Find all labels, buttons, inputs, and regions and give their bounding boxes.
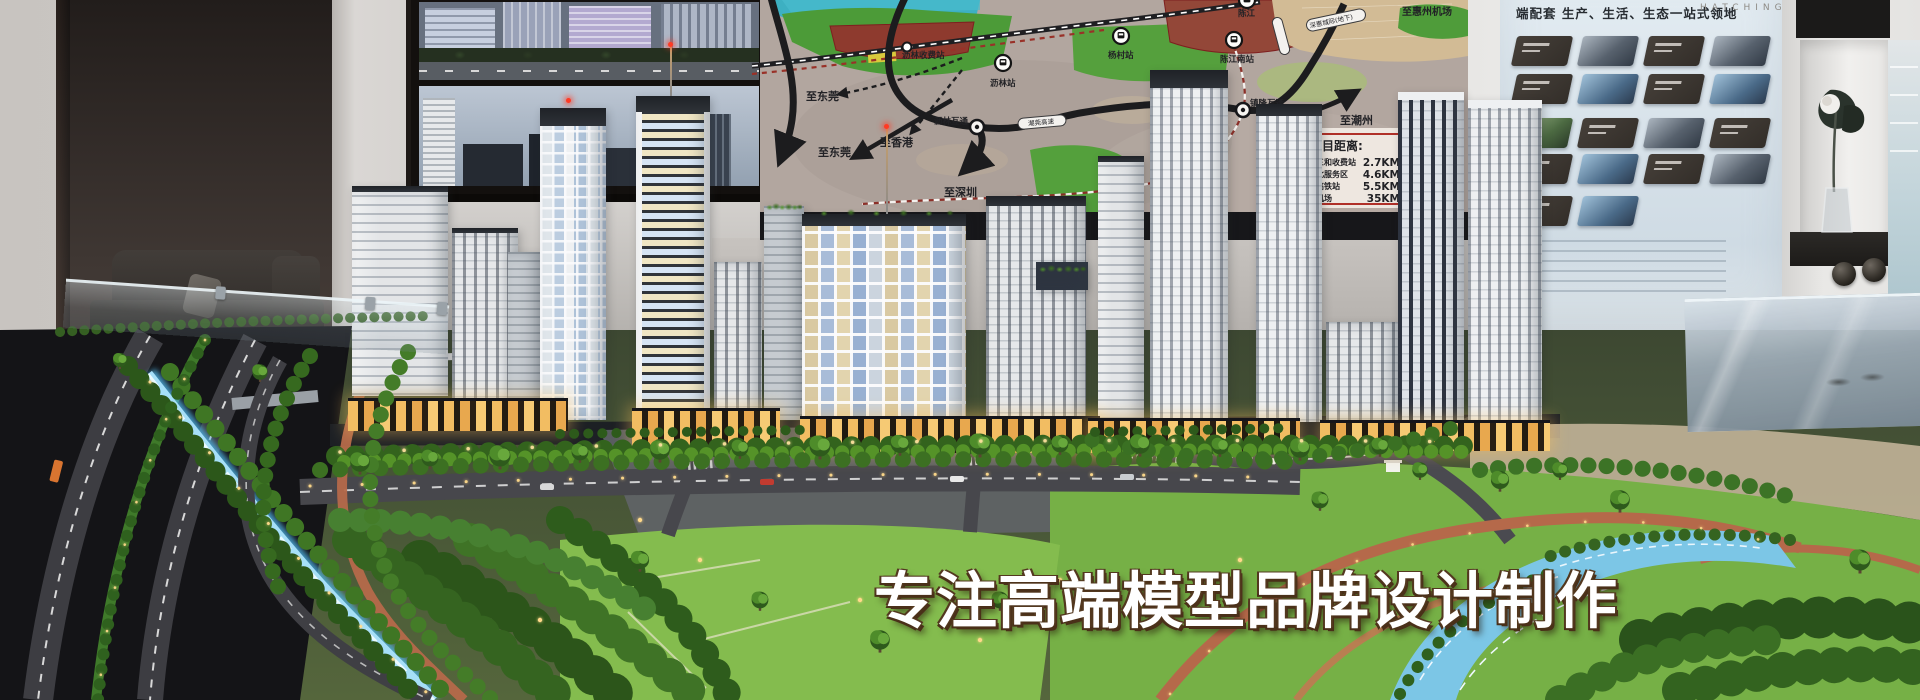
decor-sphere	[1832, 262, 1856, 286]
antenna	[886, 128, 888, 214]
aviation-beacon	[884, 124, 889, 129]
model-tower	[352, 186, 448, 396]
glass-clamp	[365, 297, 376, 311]
model-tower-low	[1326, 322, 1398, 422]
aviation-beacon	[566, 98, 571, 103]
retail-podium	[1320, 420, 1550, 451]
antenna	[670, 46, 672, 96]
glass-table-right	[1684, 293, 1920, 432]
model-tower-narrow	[1098, 156, 1144, 422]
retail-podium	[1088, 418, 1300, 453]
model-tower-tall	[1398, 92, 1464, 432]
model-tower-tall	[1468, 100, 1542, 434]
glass-clamp	[215, 286, 226, 300]
retail-podium	[632, 408, 780, 449]
model-tower-residential	[802, 214, 966, 446]
model-tower-tall	[1256, 104, 1322, 422]
glass-clamp	[437, 302, 448, 316]
model-tower	[764, 206, 804, 420]
model-tower	[986, 196, 1086, 428]
model-tower	[508, 252, 542, 408]
slogan-text: 专注高端模型品牌设计制作	[874, 551, 1618, 640]
model-tower	[714, 262, 762, 420]
model-tower-tall	[1150, 70, 1228, 426]
model-tower-lit	[636, 96, 710, 426]
model-tower-tall	[540, 108, 606, 420]
showroom-photo: 深惠城际(地下) 潮莞高速 至东莞 至东莞 至香港 至深圳 至潮州 至惠州机场 …	[0, 0, 1920, 700]
decor-sphere	[1862, 258, 1886, 282]
retail-podium	[800, 416, 1100, 453]
retail-podium	[348, 398, 568, 431]
roof-terrace	[1036, 262, 1088, 290]
aviation-beacon	[668, 42, 673, 47]
